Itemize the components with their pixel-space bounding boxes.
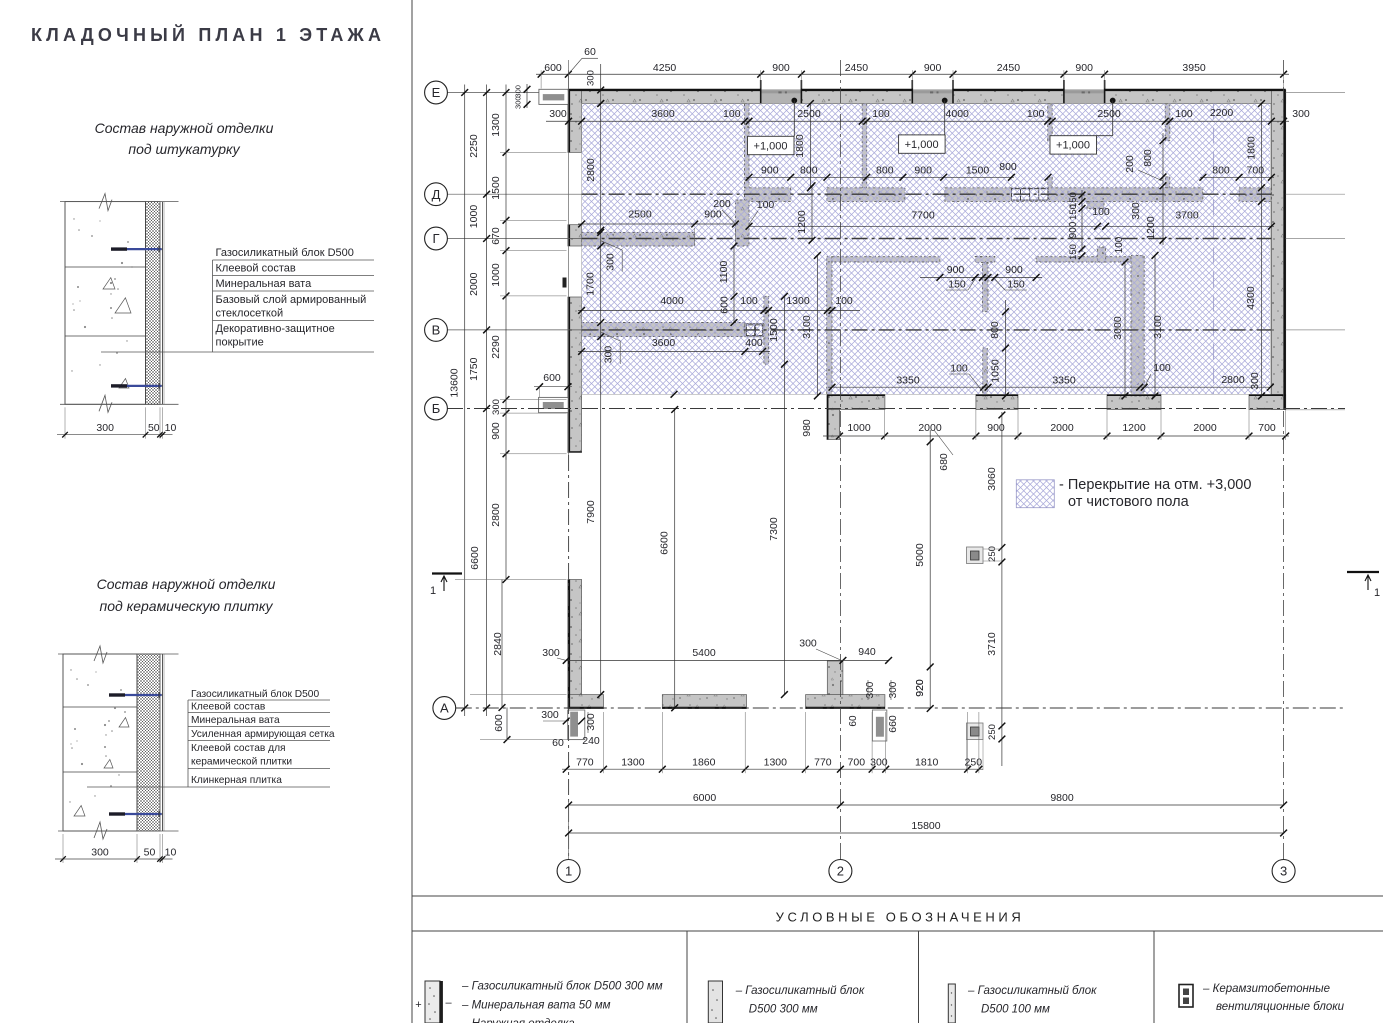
svg-text:150: 150 [1007, 279, 1025, 291]
svg-text:900: 900 [704, 209, 722, 221]
svg-text:300: 300 [1130, 202, 1142, 220]
svg-text:300: 300 [514, 96, 523, 109]
svg-text:3350: 3350 [896, 374, 920, 386]
svg-text:2450: 2450 [845, 62, 869, 74]
svg-text:940: 940 [858, 646, 876, 658]
svg-text:900: 900 [490, 422, 502, 440]
svg-text:3: 3 [1280, 864, 1287, 879]
svg-text:240: 240 [582, 735, 600, 747]
svg-text:под керамическую плитку: под керамическую плитку [99, 598, 273, 614]
svg-text:1: 1 [1374, 587, 1380, 599]
svg-text:1000: 1000 [847, 422, 871, 434]
svg-text:100: 100 [757, 199, 775, 211]
svg-text:1750: 1750 [468, 357, 480, 381]
svg-text:1810: 1810 [915, 757, 939, 769]
svg-text:2840: 2840 [492, 632, 504, 656]
svg-text:– Газосиликатный блок: – Газосиликатный блок [967, 985, 1097, 997]
svg-text:600: 600 [493, 714, 505, 732]
svg-text:В: В [432, 323, 441, 338]
svg-text:1500: 1500 [490, 176, 502, 200]
svg-text:Декоративно-защитное: Декоративно-защитное [216, 323, 335, 335]
svg-text:Базовый слой армированный: Базовый слой армированный [216, 294, 367, 306]
svg-text:1200: 1200 [1122, 422, 1146, 434]
svg-text:10: 10 [165, 847, 177, 859]
svg-text:300: 300 [549, 108, 567, 120]
svg-text:5000: 5000 [914, 543, 926, 567]
svg-text:770: 770 [814, 757, 832, 769]
svg-text:100: 100 [740, 295, 758, 307]
svg-text:2290: 2290 [490, 335, 502, 359]
svg-text:300: 300 [865, 681, 876, 698]
svg-text:300: 300 [603, 346, 615, 364]
svg-text:- Перекрытие на отм. +3,000: - Перекрытие на отм. +3,000 [1059, 477, 1251, 493]
svg-text:Б: Б [432, 401, 441, 416]
svg-text:300: 300 [96, 422, 114, 434]
svg-text:под штукатурку: под штукатурку [128, 141, 240, 157]
svg-text:керамической плитки: керамической плитки [191, 757, 292, 768]
svg-text:100: 100 [872, 108, 890, 120]
svg-text:700: 700 [1258, 422, 1276, 434]
svg-text:Г: Г [432, 231, 439, 246]
svg-text:2000: 2000 [468, 272, 480, 296]
svg-text:3100: 3100 [1152, 315, 1164, 339]
svg-text:УСЛОВНЫЕ ОБОЗНАЧЕНИЯ: УСЛОВНЫЕ ОБОЗНАЧЕНИЯ [776, 910, 1025, 925]
svg-text:400: 400 [745, 337, 763, 349]
svg-text:2: 2 [837, 864, 844, 879]
svg-text:3700: 3700 [1175, 210, 1199, 222]
svg-text:1500: 1500 [768, 318, 780, 342]
svg-text:50: 50 [144, 847, 156, 859]
svg-text:300: 300 [1249, 372, 1261, 390]
svg-text:стеклосеткой: стеклосеткой [216, 308, 284, 320]
svg-text:1100: 1100 [718, 261, 730, 284]
svg-text:250: 250 [987, 546, 998, 562]
svg-text:1300: 1300 [786, 295, 810, 307]
svg-text:Газосиликатный блок D500: Газосиликатный блок D500 [216, 247, 354, 259]
svg-text:7700: 7700 [911, 210, 935, 222]
svg-text:Усиленная армирующая сетка: Усиленная армирующая сетка [191, 729, 335, 740]
svg-text:+1,000: +1,000 [1056, 140, 1090, 152]
svg-text:100: 100 [1175, 108, 1193, 120]
svg-text:1200: 1200 [796, 210, 808, 234]
svg-text:300: 300 [514, 85, 523, 98]
svg-text:680: 680 [938, 453, 950, 471]
svg-text:1860: 1860 [692, 757, 716, 769]
svg-text:900: 900 [1075, 62, 1093, 74]
svg-text:2800: 2800 [1221, 374, 1245, 386]
svg-text:1800: 1800 [794, 134, 806, 158]
svg-text:– Наружная отделка: – Наружная отделка [461, 1018, 575, 1023]
svg-text:150: 150 [948, 279, 966, 291]
svg-text:2200: 2200 [1210, 107, 1234, 119]
svg-text:1700: 1700 [585, 272, 597, 296]
svg-text:300: 300 [799, 638, 817, 650]
svg-text:от чистового пола: от чистового пола [1068, 494, 1190, 510]
svg-text:300: 300 [586, 70, 597, 86]
svg-text:300: 300 [888, 681, 899, 698]
svg-text:1500: 1500 [966, 165, 990, 177]
svg-text:300: 300 [491, 399, 502, 415]
svg-text:3000: 3000 [1112, 316, 1124, 340]
svg-text:700: 700 [848, 757, 866, 769]
svg-text:60: 60 [584, 46, 596, 58]
svg-text:9800: 9800 [1050, 792, 1074, 804]
svg-text:вентиляционные блоки: вентиляционные блоки [1216, 1001, 1345, 1013]
svg-text:4250: 4250 [653, 62, 677, 74]
svg-text:+: + [415, 999, 421, 1011]
svg-text:6600: 6600 [659, 531, 671, 555]
svg-text:3100: 3100 [801, 315, 813, 339]
svg-text:– Газосиликатный блок: – Газосиликатный блок [735, 985, 865, 997]
svg-text:Клеевой состав: Клеевой состав [191, 702, 265, 713]
svg-text:770: 770 [576, 757, 594, 769]
svg-text:100: 100 [1114, 236, 1125, 253]
svg-text:980: 980 [801, 419, 813, 437]
svg-text:900: 900 [924, 62, 942, 74]
svg-text:150: 150 [1068, 204, 1079, 220]
svg-text:13600: 13600 [449, 368, 461, 397]
svg-text:600: 600 [543, 372, 561, 384]
svg-text:900: 900 [987, 422, 1005, 434]
svg-text:60: 60 [552, 737, 564, 749]
svg-text:Минеральная вата: Минеральная вата [216, 278, 313, 290]
svg-text:– Минеральная вата 50 мм: – Минеральная вата 50 мм [461, 1000, 611, 1012]
svg-text:600: 600 [544, 62, 562, 74]
svg-text:50: 50 [148, 422, 160, 434]
svg-text:2800: 2800 [585, 158, 597, 182]
svg-text:800: 800 [1212, 165, 1230, 177]
svg-text:2800: 2800 [490, 503, 502, 527]
svg-text:900: 900 [772, 62, 790, 74]
svg-text:2250: 2250 [468, 134, 480, 158]
svg-text:920: 920 [914, 679, 926, 697]
svg-text:600: 600 [719, 296, 731, 314]
svg-text:1000: 1000 [490, 263, 502, 287]
svg-text:10: 10 [165, 422, 177, 434]
svg-text:Клеевой состав для: Клеевой состав для [191, 743, 286, 754]
svg-text:800: 800 [800, 165, 818, 177]
svg-text:4000: 4000 [660, 295, 684, 307]
svg-text:1: 1 [565, 864, 572, 879]
svg-text:6600: 6600 [469, 546, 481, 570]
svg-text:6000: 6000 [693, 792, 717, 804]
svg-text:100: 100 [950, 363, 968, 375]
svg-text:D500 300 мм: D500 300 мм [749, 1004, 818, 1016]
svg-text:– Газосиликатный блок D500 30: – Газосиликатный блок D500 300 мм [461, 981, 663, 993]
svg-text:2500: 2500 [1097, 108, 1121, 120]
svg-text:2000: 2000 [1193, 422, 1217, 434]
svg-text:200: 200 [713, 198, 731, 210]
svg-text:Состав наружной отделки: Состав наружной отделки [97, 576, 276, 592]
svg-text:100: 100 [835, 295, 853, 307]
svg-text:– Керамзитобетонные: – Керамзитобетонные [1202, 983, 1330, 995]
svg-text:800: 800 [876, 165, 894, 177]
svg-text:60: 60 [848, 715, 859, 727]
svg-text:100: 100 [1153, 362, 1171, 374]
svg-text:670: 670 [490, 227, 502, 245]
svg-text:А: А [440, 701, 449, 716]
svg-text:900: 900 [947, 264, 965, 276]
svg-text:Минеральная вата: Минеральная вата [191, 715, 280, 726]
svg-text:2500: 2500 [797, 108, 821, 120]
svg-text:15800: 15800 [911, 820, 940, 832]
svg-text:300: 300 [605, 253, 617, 271]
svg-text:7900: 7900 [585, 500, 597, 524]
svg-text:Д: Д [432, 187, 441, 202]
svg-text:700: 700 [1247, 165, 1265, 177]
svg-text:7300: 7300 [768, 517, 780, 541]
svg-text:1800: 1800 [1246, 136, 1258, 160]
svg-text:D500 100 мм: D500 100 мм [981, 1004, 1050, 1016]
svg-text:100: 100 [1092, 206, 1110, 218]
svg-text:3600: 3600 [652, 337, 676, 349]
svg-text:+1,000: +1,000 [754, 140, 788, 152]
svg-text:1000: 1000 [468, 205, 480, 229]
svg-text:150: 150 [1068, 244, 1079, 260]
svg-text:800: 800 [999, 161, 1017, 173]
svg-text:3060: 3060 [986, 467, 998, 491]
svg-text:2000: 2000 [1050, 422, 1074, 434]
svg-text:300: 300 [541, 709, 559, 721]
svg-text:1200: 1200 [1145, 216, 1157, 240]
svg-text:300: 300 [1292, 108, 1310, 120]
svg-text:900: 900 [914, 165, 932, 177]
svg-text:3350: 3350 [1052, 374, 1076, 386]
svg-text:+1,000: +1,000 [905, 139, 939, 151]
svg-text:Клеевой состав: Клеевой состав [216, 263, 296, 275]
svg-text:1300: 1300 [490, 113, 502, 137]
svg-text:800: 800 [1142, 149, 1154, 167]
svg-text:1: 1 [430, 585, 436, 597]
svg-text:100: 100 [1027, 108, 1045, 120]
svg-text:Газосиликатный блок D500: Газосиликатный блок D500 [191, 688, 319, 700]
svg-text:КЛАДОЧНЫЙ ПЛАН 1 ЭТАЖА: КЛАДОЧНЫЙ ПЛАН 1 ЭТАЖА [31, 24, 385, 45]
svg-text:3950: 3950 [1182, 62, 1206, 74]
svg-text:Клинкерная плитка: Клинкерная плитка [191, 775, 282, 786]
svg-text:Состав наружной отделки: Состав наружной отделки [95, 120, 274, 136]
svg-text:900: 900 [1005, 264, 1023, 276]
svg-text:1300: 1300 [764, 757, 788, 769]
svg-text:5400: 5400 [692, 647, 716, 659]
svg-text:660: 660 [887, 715, 899, 733]
svg-text:900: 900 [761, 165, 779, 177]
svg-text:300: 300 [585, 713, 597, 731]
svg-text:3600: 3600 [651, 108, 675, 120]
svg-text:покрытие: покрытие [216, 337, 264, 349]
svg-text:900: 900 [1068, 221, 1079, 238]
svg-text:Е: Е [432, 85, 441, 100]
svg-text:250: 250 [965, 757, 983, 769]
svg-text:–: – [445, 997, 452, 1009]
svg-text:2500: 2500 [628, 209, 652, 221]
svg-text:4000: 4000 [946, 108, 970, 120]
svg-text:4300: 4300 [1245, 286, 1257, 310]
svg-text:200: 200 [1124, 155, 1136, 173]
svg-text:300: 300 [542, 647, 560, 659]
svg-text:1050: 1050 [990, 359, 1002, 383]
svg-text:3710: 3710 [986, 632, 998, 656]
svg-text:100: 100 [723, 108, 741, 120]
svg-text:250: 250 [987, 724, 998, 740]
svg-text:2450: 2450 [997, 62, 1021, 74]
svg-text:300: 300 [870, 757, 888, 769]
svg-text:300: 300 [91, 847, 109, 859]
svg-text:1300: 1300 [621, 757, 645, 769]
svg-text:800: 800 [989, 321, 1001, 339]
